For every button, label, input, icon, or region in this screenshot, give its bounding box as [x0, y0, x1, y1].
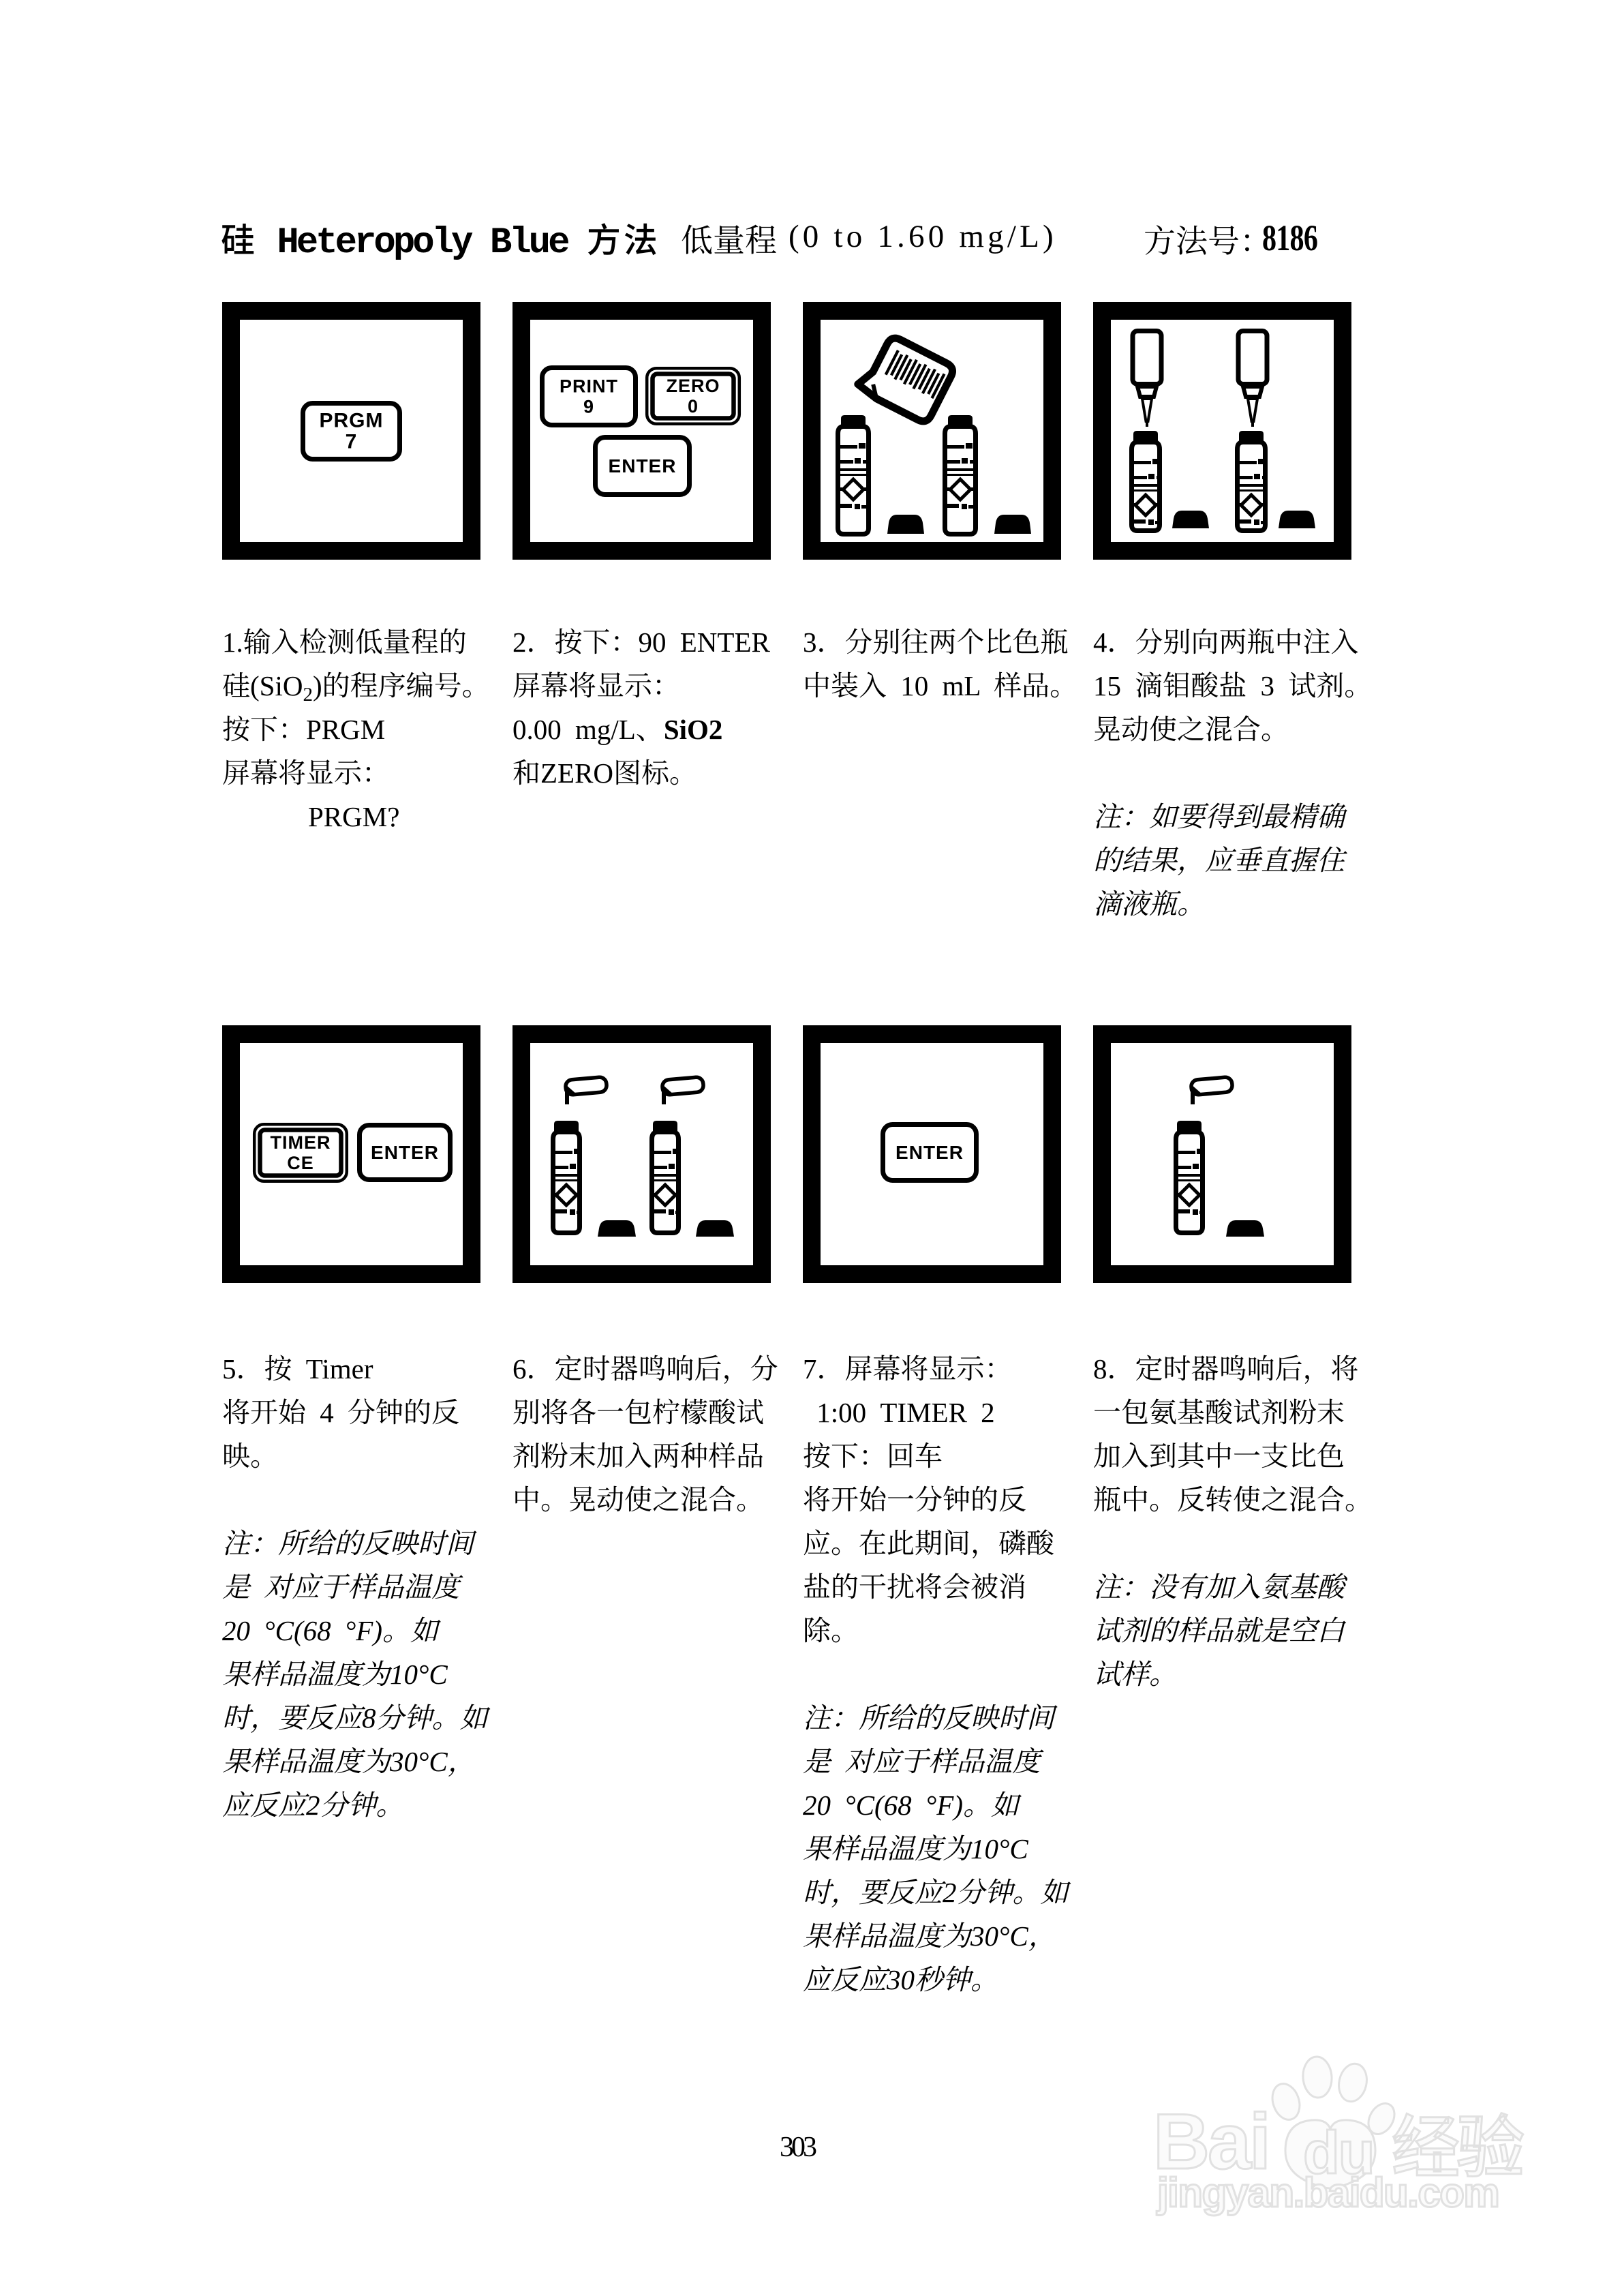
svg-text:0: 0 — [688, 396, 699, 417]
svg-text:ENTER: ENTER — [609, 455, 677, 477]
svg-text:CE: CE — [287, 1153, 314, 1173]
svg-text:PRINT: PRINT — [560, 376, 618, 397]
svg-text:TIMER: TIMER — [271, 1132, 331, 1153]
svg-text:jingyan.baidu.com: jingyan.baidu.com — [1157, 2170, 1499, 2216]
svg-text:ENTER: ENTER — [371, 1142, 439, 1163]
svg-text:PRGM: PRGM — [320, 410, 384, 432]
svg-text:ENTER: ENTER — [896, 1142, 964, 1163]
svg-text:9: 9 — [583, 397, 594, 417]
svg-text:ZERO: ZERO — [666, 376, 720, 396]
svg-text:7: 7 — [346, 431, 358, 453]
